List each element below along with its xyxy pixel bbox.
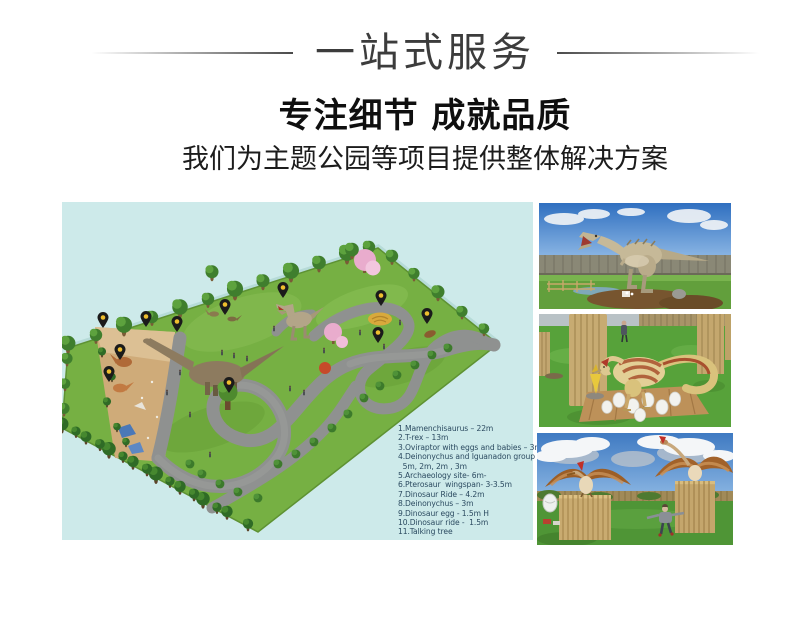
title-rule-left: [91, 52, 293, 54]
page-subheading: 我们为主题公园等项目提供整体解决方案: [25, 137, 800, 176]
right-perch-box: [675, 481, 715, 533]
map-pin-1: [97, 312, 109, 328]
log: [545, 373, 563, 379]
map-pin-2: [140, 311, 152, 327]
map-pin-7: [277, 282, 289, 298]
map-pin-5: [103, 366, 115, 382]
legend-item: 10.Dinosaur ride - 1.5m: [398, 518, 542, 527]
section-banner: 一站式服务: [25, 30, 800, 76]
title-rule-right: [557, 52, 759, 54]
legend-item: 2.T-rex – 13m: [398, 433, 542, 442]
map-pin-9: [375, 290, 387, 306]
legend-item: 8.Deinonychus – 3m: [398, 499, 542, 508]
rock: [672, 289, 686, 299]
photo-pterosaurs: [537, 433, 733, 545]
map-pin-3: [171, 316, 183, 332]
park-master-plan-image: 1.Mamenchisaurus – 22m2.T-rex – 13m3.Ovi…: [62, 202, 533, 540]
legend-item: 1.Mamenchisaurus – 22m: [398, 424, 542, 433]
photo-oviraptor-nest: [539, 314, 731, 427]
map-pin-4: [114, 344, 126, 360]
page: 一站式服务 专注细节 成就品质 我们为主题公园等项目提供整体解决方案: [0, 0, 800, 626]
legend-item: 6.Pterosaur wingspan- 3-3.5m: [398, 480, 542, 489]
map-pin-11: [372, 327, 384, 343]
page-heading: 专注细节 成就品质: [25, 88, 800, 137]
legend-item: 11.Talking tree: [398, 527, 542, 536]
map-pin-8: [223, 377, 235, 393]
legend-item: 9.Dinosaur egg - 1.5m H: [398, 509, 542, 518]
map-pin-6: [219, 299, 231, 315]
legend-item: 7.Dinosaur Ride – 4.2m: [398, 490, 542, 499]
left-perch-box: [559, 495, 611, 540]
legend-item: 4.Deinonychus and Iguanadon group: [398, 452, 542, 461]
legend-item: 5.Archaeology site- 6m-: [398, 471, 542, 480]
map-pin-10: [421, 308, 433, 324]
banner-title: 一站式服务: [315, 30, 535, 76]
photo-trex-animatronic: [539, 203, 731, 309]
legend-item: 3.Oviraptor with eggs and babies – 3m: [398, 443, 542, 452]
attractions-legend: 1.Mamenchisaurus – 22m2.T-rex – 13m3.Ovi…: [398, 424, 542, 537]
legend-item: 5m, 2m, 2m , 3m: [398, 462, 542, 471]
